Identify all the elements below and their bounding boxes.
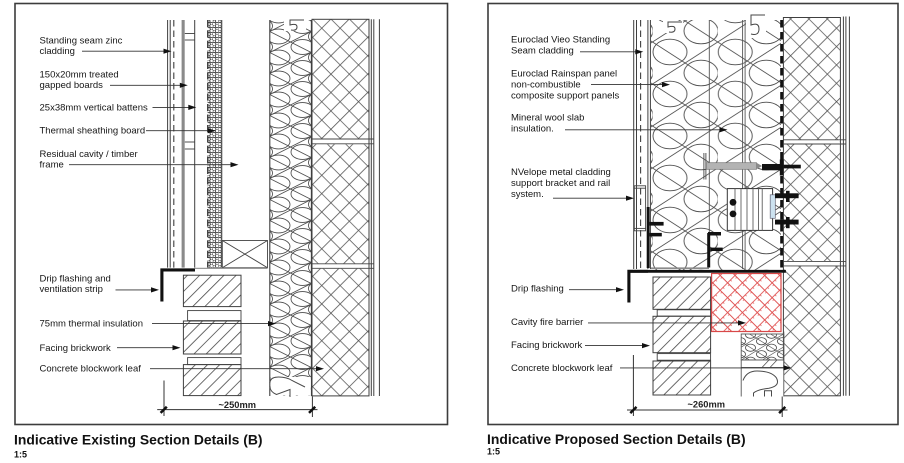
svg-text:cladding: cladding [40, 46, 75, 57]
svg-text:Mineral wool slab: Mineral wool slab [511, 113, 584, 124]
svg-text:system.: system. [511, 189, 544, 200]
svg-text:Facing brickwork: Facing brickwork [511, 340, 583, 351]
svg-text:composite support panels: composite support panels [511, 90, 620, 101]
svg-text:Standing seam zinc: Standing seam zinc [40, 35, 123, 46]
svg-text:~260mm: ~260mm [688, 399, 725, 409]
svg-text:non-combustible: non-combustible [511, 79, 581, 90]
svg-text:Concrete blockwork leaf: Concrete blockwork leaf [511, 363, 613, 374]
svg-text:insulation.: insulation. [511, 124, 554, 135]
svg-text:Seam cladding: Seam cladding [511, 46, 574, 57]
svg-text:Indicative Existing Section De: Indicative Existing Section Details (B) [14, 432, 263, 448]
svg-text:NVelope metal cladding: NVelope metal cladding [511, 167, 611, 178]
svg-text:gapped boards: gapped boards [40, 80, 104, 91]
svg-text:Facing brickwork: Facing brickwork [40, 343, 112, 354]
svg-text:Indicative Proposed Section De: Indicative Proposed Section Details (B) [487, 431, 746, 447]
svg-text:1:5: 1:5 [487, 447, 500, 457]
svg-text:Euroclad Rainspan panel: Euroclad Rainspan panel [511, 68, 617, 79]
svg-text:Euroclad Vieo Standing: Euroclad Vieo Standing [511, 35, 610, 46]
svg-text:75mm thermal insulation: 75mm thermal insulation [40, 319, 144, 330]
svg-text:Drip flashing and: Drip flashing and [40, 273, 111, 284]
svg-text:Cavity fire barrier: Cavity fire barrier [511, 317, 583, 328]
svg-text:~250mm: ~250mm [219, 400, 256, 410]
svg-text:Residual cavity / timber: Residual cavity / timber [40, 149, 138, 160]
svg-text:frame: frame [40, 160, 64, 171]
svg-text:25x38mm vertical battens: 25x38mm vertical battens [40, 102, 148, 113]
svg-text:150x20mm treated: 150x20mm treated [40, 70, 119, 81]
svg-text:Concrete blockwork leaf: Concrete blockwork leaf [40, 363, 142, 374]
svg-text:Thermal sheathing board: Thermal sheathing board [40, 125, 146, 136]
svg-text:support bracket and rail: support bracket and rail [511, 178, 610, 189]
svg-text:ventilation strip: ventilation strip [40, 284, 103, 295]
svg-text:1:5: 1:5 [14, 450, 27, 460]
svg-text:Drip flashing: Drip flashing [511, 283, 564, 294]
